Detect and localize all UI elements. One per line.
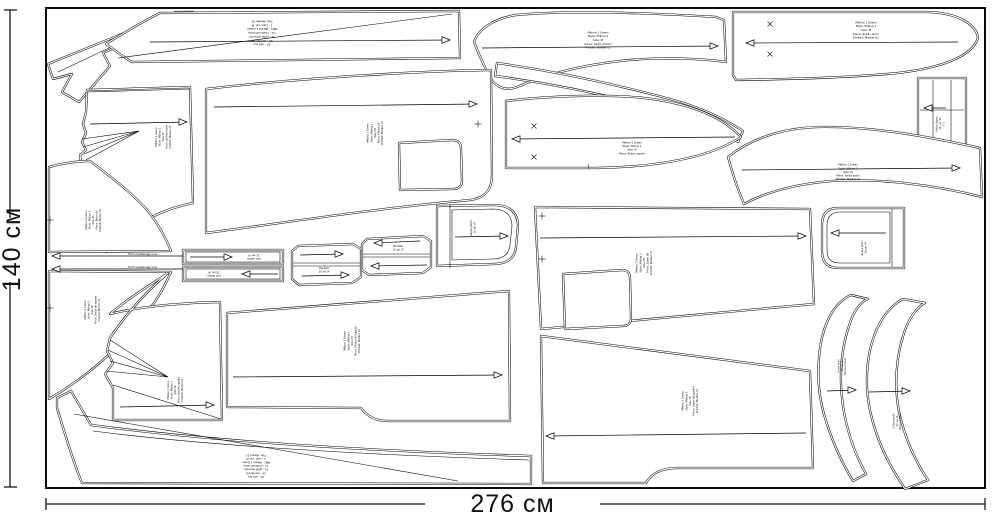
pattern-marker: 2X - ušít švy2X - obnitkovat3X - přišít … (0, 0, 993, 522)
pattern-piece-sleeve-top: Mikina 1 GreenStyle: Mikina 1Size: MPiec… (733, 12, 978, 80)
piece-label-cuff-strip-2: Lem rukávu2X vel. M (206, 271, 221, 277)
grain-arrowhead-icon (902, 388, 910, 394)
pattern-piece-cuff-strip-2: Lem rukávu2X vel. M (183, 267, 283, 281)
pattern-piece-pocket-flap: Patka kapsy1X vel. MF 1 (918, 78, 966, 145)
grain-arrowhead-icon (848, 387, 856, 393)
fold-line-label: Fold Line/Selvage Line (128, 265, 157, 269)
fold-line-arrowhead-icon (52, 253, 60, 259)
pattern-piece-front-lower: Mikina 1 GreenStyle: Mikina 1Size: MPiec… (227, 291, 510, 421)
pattern-piece-collar-2: Límec spodní1X vel. MMikina 1 Green (867, 299, 928, 489)
pattern-piece-sleeve-under: Mikina 1 GreenStyle: Mikina 1Size: MPiec… (506, 96, 741, 169)
piece-label-cuff-right: Manžeta2X vel. M (393, 245, 404, 251)
piece-label-cuff-strip-1: Lem rukávu2X vel. M (246, 254, 261, 260)
fold-lines: Fold Line/Selvage LineFold Line/Selvage … (52, 252, 183, 272)
fold-line-label: Fold Line/Selvage Line (128, 252, 157, 256)
pocket-cutout (563, 270, 631, 329)
pattern-piece-cuff-left: Manžeta2X vel. M (292, 244, 361, 285)
height-dimension-label: 140 см (0, 179, 28, 319)
pattern-piece-pocket-side: Kapsa boční1X vel. M (822, 208, 904, 268)
pattern-piece-pocket-front: Kapsa přední1X vel. M (437, 204, 518, 268)
pattern-piece-back-lower: Mikina 1 GreenStyle: Mikina 1Size: MPiec… (541, 336, 813, 483)
piece-label-cuff-left: Manžeta2X vel. M (319, 267, 330, 273)
piece-label-sleeve-under: Mikina 1 GreenStyle: Mikina 1Size: MPiec… (619, 141, 645, 156)
pattern-piece-cuff-strip-1: Lem rukávu2X vel. M (183, 250, 283, 264)
marker-canvas: 2X - ušít švy2X - obnitkovat3X - přišít … (0, 0, 993, 522)
piece-label-pocket-side: Kapsa boční1X vel. M (861, 240, 867, 255)
width-dimension-label: 276 см (425, 490, 600, 520)
pattern-piece-collar-1: Límec horní1X vel. MMikina 1 Green (818, 295, 868, 481)
pattern-piece-hem-band-top: 2X - ušít švy2X - obnitkovat3X - přišít … (106, 11, 460, 62)
pieces-layer: 2X - ušít švy2X - obnitkovat3X - přišít … (47, 11, 983, 489)
pattern-piece-back-panel: Mikina 1 GreenStyle: Mikina 1Size: MPiec… (535, 207, 814, 329)
pocket-cutout (399, 140, 462, 190)
pattern-piece-cuff-right: Manžeta2X vel. M (362, 236, 431, 275)
